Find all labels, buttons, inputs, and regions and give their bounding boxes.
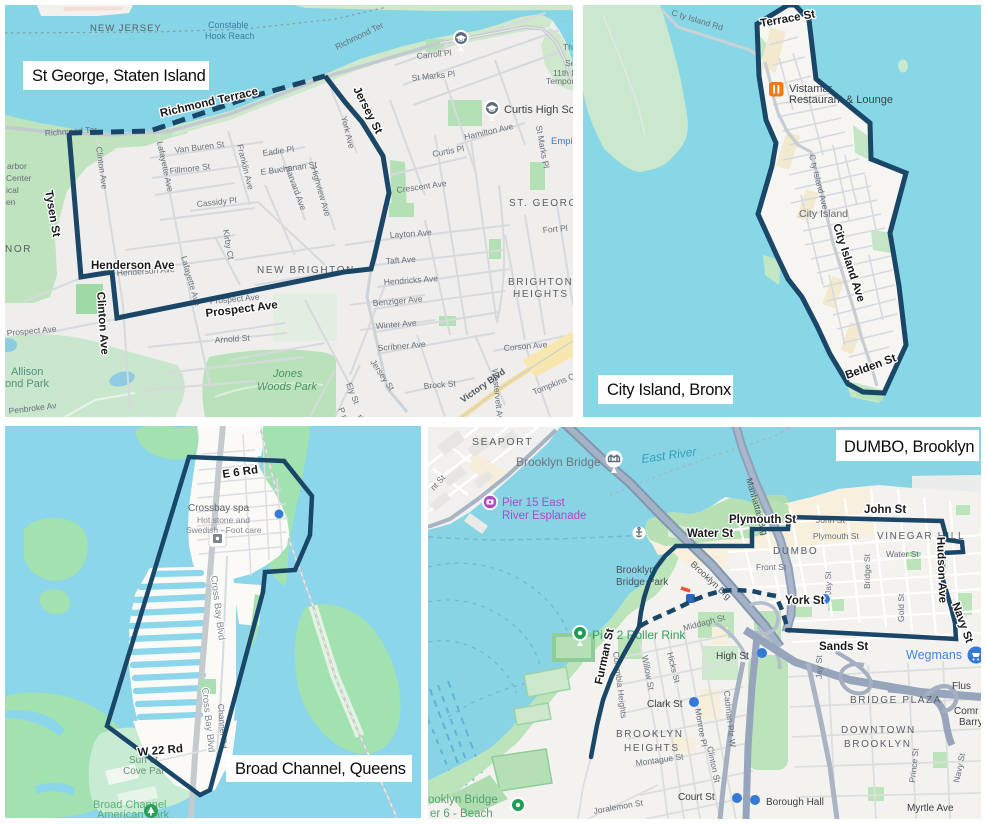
svg-text:City Island: City Island bbox=[799, 208, 848, 220]
svg-text:BROOKLYN: BROOKLYN bbox=[616, 729, 684, 740]
svg-text:BROOKLYN: BROOKLYN bbox=[844, 739, 912, 750]
svg-text:Empin: Empin bbox=[551, 136, 573, 147]
svg-text:DUMBO, Brooklyn: DUMBO, Brooklyn bbox=[844, 438, 974, 456]
svg-text:Barry: Barry bbox=[959, 717, 981, 728]
svg-text:ST. GEORGE: ST. GEORGE bbox=[509, 198, 573, 209]
svg-text:Flus: Flus bbox=[952, 681, 971, 692]
svg-text:Jones: Jones bbox=[272, 368, 303, 380]
svg-text:Brooklyn Bridge: Brooklyn Bridge bbox=[516, 455, 601, 469]
svg-text:Water St: Water St bbox=[687, 528, 733, 540]
svg-text:York St: York St bbox=[785, 595, 825, 607]
svg-text:Bridge Park: Bridge Park bbox=[616, 577, 669, 588]
svg-text:Pier 15 East: Pier 15 East bbox=[502, 497, 565, 509]
svg-text:The: The bbox=[563, 42, 573, 52]
svg-text:Wegmans: Wegmans bbox=[906, 648, 962, 662]
svg-text:en: en bbox=[6, 197, 16, 207]
svg-text:Curtis High Scho: Curtis High Scho bbox=[504, 104, 573, 116]
svg-text:River Esplanade: River Esplanade bbox=[502, 510, 586, 522]
svg-text:NEW JERSEY: NEW JERSEY bbox=[90, 23, 162, 34]
svg-text:SEAPORT: SEAPORT bbox=[472, 436, 533, 448]
svg-text:Water St: Water St bbox=[886, 549, 919, 559]
svg-text:Cove Par: Cove Par bbox=[123, 766, 165, 777]
svg-text:ond Park: ond Park bbox=[5, 378, 50, 390]
svg-text:arbor: arbor bbox=[7, 161, 27, 171]
svg-text:Hudson Ave: Hudson Ave bbox=[934, 537, 948, 604]
svg-text:Swedish - Foot care: Swedish - Foot care bbox=[186, 525, 262, 535]
svg-text:Tempora: Tempora bbox=[546, 76, 573, 86]
svg-text:Woods Park: Woods Park bbox=[257, 381, 317, 393]
svg-text:ical: ical bbox=[6, 185, 19, 195]
svg-text:Broad Channel, Queens: Broad Channel, Queens bbox=[235, 760, 406, 778]
svg-text:Myrtle Ave: Myrtle Ave bbox=[907, 803, 954, 814]
svg-text:Court St: Court St bbox=[678, 792, 715, 803]
svg-text:DUMBO: DUMBO bbox=[773, 546, 818, 557]
svg-text:DOWNTOWN: DOWNTOWN bbox=[841, 725, 916, 736]
svg-text:NOR: NOR bbox=[5, 244, 32, 255]
svg-text:Taft Ave: Taft Ave bbox=[385, 254, 416, 266]
svg-text:High St: High St bbox=[716, 651, 749, 662]
svg-text:BRIDGE PLAZA: BRIDGE PLAZA bbox=[850, 695, 942, 706]
svg-text:Clark St: Clark St bbox=[647, 699, 683, 710]
svg-text:Front St: Front St bbox=[756, 562, 787, 572]
svg-text:Hook Reach: Hook Reach bbox=[205, 31, 255, 41]
svg-text:Borough Hall: Borough Hall bbox=[766, 797, 824, 808]
svg-text:City Island, Bronx: City Island, Bronx bbox=[607, 381, 732, 399]
svg-text:Jay St: Jay St bbox=[823, 571, 833, 595]
svg-text:Sands St: Sands St bbox=[819, 641, 868, 653]
svg-text:Plymouth St: Plymouth St bbox=[729, 514, 796, 526]
svg-text:Brooklyn: Brooklyn bbox=[616, 565, 655, 576]
svg-text:Crossbay spa: Crossbay spa bbox=[188, 503, 250, 514]
svg-text:Gold St: Gold St bbox=[896, 593, 906, 622]
svg-text:St George, Staten Island: St George, Staten Island bbox=[32, 67, 206, 85]
svg-text:Bridge St: Bridge St bbox=[862, 553, 872, 589]
svg-text:Constable: Constable bbox=[208, 20, 249, 30]
svg-text:Plymouth St: Plymouth St bbox=[813, 531, 859, 541]
svg-text:ooklyn Bridge: ooklyn Bridge bbox=[428, 794, 498, 806]
svg-text:er 6 - Beach: er 6 - Beach bbox=[430, 808, 493, 819]
svg-text:Jay St: Jay St bbox=[814, 655, 824, 679]
svg-text:BRIGHTON: BRIGHTON bbox=[508, 277, 573, 288]
svg-text:HEIGHTS: HEIGHTS bbox=[513, 289, 569, 300]
svg-text:Henderson Ave: Henderson Ave bbox=[91, 260, 175, 272]
svg-text:Comr: Comr bbox=[954, 706, 979, 717]
svg-text:Allison: Allison bbox=[11, 366, 43, 378]
svg-text:Hot stone and: Hot stone and bbox=[197, 515, 250, 525]
svg-text:John St: John St bbox=[864, 504, 906, 516]
svg-text:American Park: American Park bbox=[97, 809, 170, 818]
svg-text:Sep: Sep bbox=[565, 58, 573, 68]
svg-text:Center: Center bbox=[6, 173, 32, 183]
